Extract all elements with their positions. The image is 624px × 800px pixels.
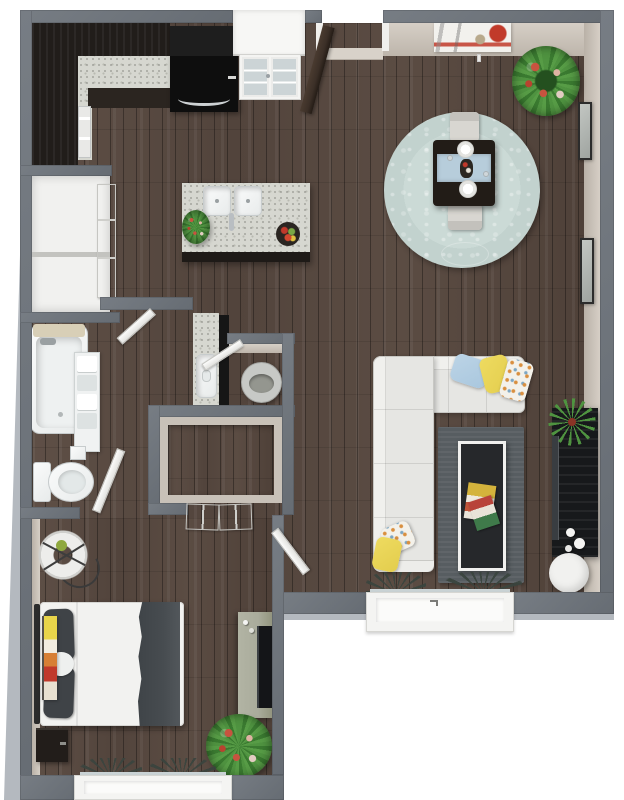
decor-sphere: [249, 628, 254, 633]
wall: [20, 507, 80, 519]
tall-cabinet: [32, 23, 78, 165]
throw-blanket: [138, 602, 180, 726]
toilet-seat: [58, 470, 86, 494]
chair-back-bottom: [448, 221, 482, 230]
window-sill: [84, 781, 222, 794]
french-door-leaf-right: [271, 57, 298, 97]
wall: [148, 405, 295, 417]
wall: [148, 503, 188, 515]
window-latch-icon: [430, 600, 438, 606]
cabinet-face: [88, 88, 182, 108]
pendant-light: [441, 242, 489, 266]
floor-plan: [0, 0, 624, 800]
nightstand-handle: [60, 742, 66, 745]
left-wall-outer-face: [4, 255, 20, 800]
decor-sphere: [566, 528, 575, 537]
french-door-leaf-left: [242, 57, 269, 97]
range-handle: [178, 92, 230, 106]
towel-shelf: [74, 352, 100, 452]
wall: [272, 515, 284, 775]
island-plant: [182, 210, 210, 244]
drain-left: [215, 199, 219, 203]
pantry-door: [97, 184, 116, 298]
picture-frame: [578, 102, 592, 160]
closet-door-right: [219, 503, 253, 530]
plate-top: [457, 141, 474, 158]
balcony-bay: [233, 10, 305, 56]
wall: [600, 10, 614, 614]
drain-right: [246, 199, 250, 203]
spider-plant: [548, 398, 596, 446]
leaning-artwork: [42, 616, 57, 700]
island-base: [182, 252, 310, 262]
sink-basin-inner: [202, 370, 211, 382]
towel: [77, 394, 97, 410]
entry-jamb-right: [382, 23, 389, 51]
closet-door-left: [186, 503, 220, 530]
light-switch: [477, 54, 481, 62]
chair-cushion: [56, 540, 67, 551]
towel: [77, 375, 97, 391]
wall: [512, 592, 614, 614]
window-sill: [376, 598, 504, 622]
tissue-box: [70, 446, 86, 460]
decor-sphere: [565, 545, 572, 552]
bedroom-tv: [257, 626, 272, 708]
wall: [20, 775, 78, 800]
wall: [383, 10, 612, 23]
decor-sphere: [574, 538, 585, 549]
bath-mat: [33, 324, 85, 337]
fruit-bowl: [276, 222, 300, 246]
walk-in-closet: [160, 417, 282, 503]
wall: [20, 10, 32, 800]
decor-sphere: [243, 620, 248, 625]
wall: [148, 405, 160, 515]
chair-back-top: [450, 112, 479, 121]
wall: [20, 165, 112, 176]
table-vase: [460, 159, 473, 178]
abstract-wall-art: [434, 22, 511, 52]
tub-drain: [58, 412, 63, 417]
entry-threshold: [322, 48, 383, 60]
dining-plant: [512, 46, 580, 116]
glass-cup: [447, 155, 453, 161]
wall: [20, 10, 233, 23]
wall: [283, 592, 368, 614]
range-handle-small: [228, 76, 236, 79]
towel: [77, 413, 97, 429]
glass-cup: [483, 171, 489, 177]
nightstand: [36, 728, 68, 762]
wall: [100, 297, 193, 310]
sheet-fold: [76, 602, 78, 726]
wall: [282, 333, 294, 515]
flat-tv: [552, 436, 559, 540]
tub-faucet-icon: [40, 338, 56, 345]
wall: [228, 775, 284, 800]
towel: [77, 356, 97, 372]
wall: [20, 312, 120, 323]
round-ottoman: [549, 553, 589, 593]
wall: [305, 10, 322, 23]
countertop: [78, 56, 182, 90]
dishwasher: [78, 106, 91, 158]
picture-frame: [580, 238, 594, 304]
plate-bottom: [459, 180, 477, 198]
basket-opening: [249, 374, 274, 393]
door-knob-icon: [266, 74, 270, 78]
faucet-icon: [229, 213, 234, 231]
